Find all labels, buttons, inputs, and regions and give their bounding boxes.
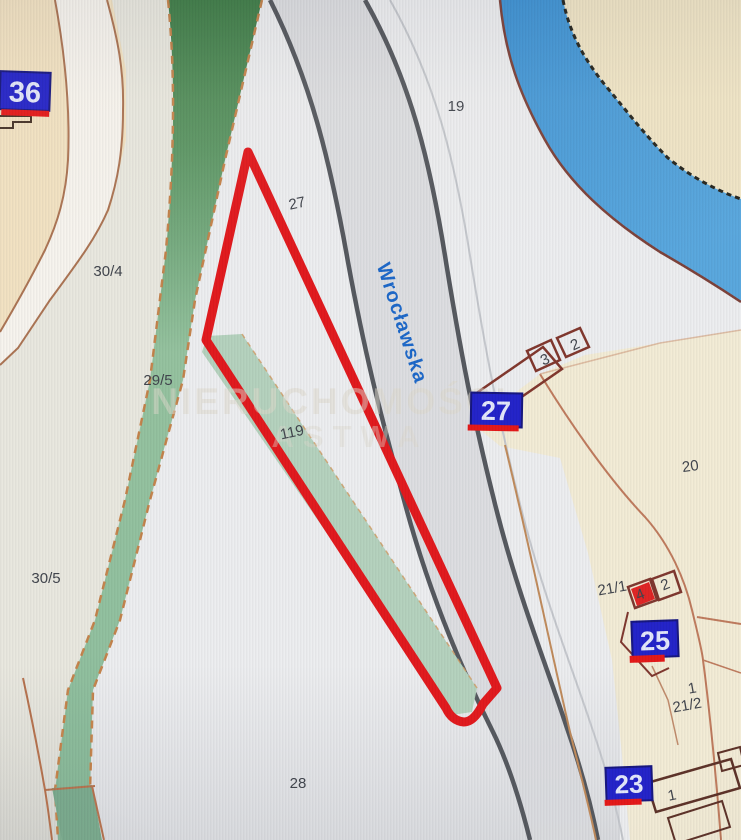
parcel-20: 20 xyxy=(681,457,700,476)
parcel-27: 27 xyxy=(287,194,307,214)
address-label-36[interactable]: 36 xyxy=(0,71,51,117)
address-label-27[interactable]: 27 xyxy=(468,393,523,432)
parcel-28: 28 xyxy=(290,775,307,792)
address-label-25-text: 25 xyxy=(640,625,671,656)
parcel-30-4: 30/4 xyxy=(93,263,122,280)
watermark-line1: NIERUCHOMOŚCI xyxy=(151,380,509,422)
parcel-29-5: 29/5 xyxy=(143,372,172,389)
address-label-25[interactable]: 25 xyxy=(628,620,678,663)
map-canvas[interactable]: NIERUCHOMOŚCI ASTWA 19 27 30/4 29/5 30/5… xyxy=(0,0,741,840)
map-viewport[interactable]: NIERUCHOMOŚCI ASTWA 19 27 30/4 29/5 30/5… xyxy=(0,0,741,840)
address-label-36-text: 36 xyxy=(8,76,41,109)
parcel-30-5: 30/5 xyxy=(31,570,60,587)
address-label-23[interactable]: 23 xyxy=(603,766,652,806)
address-label-27-text: 27 xyxy=(481,396,512,427)
address-label-23-text: 23 xyxy=(614,769,644,800)
parcel-19: 19 xyxy=(448,98,465,115)
